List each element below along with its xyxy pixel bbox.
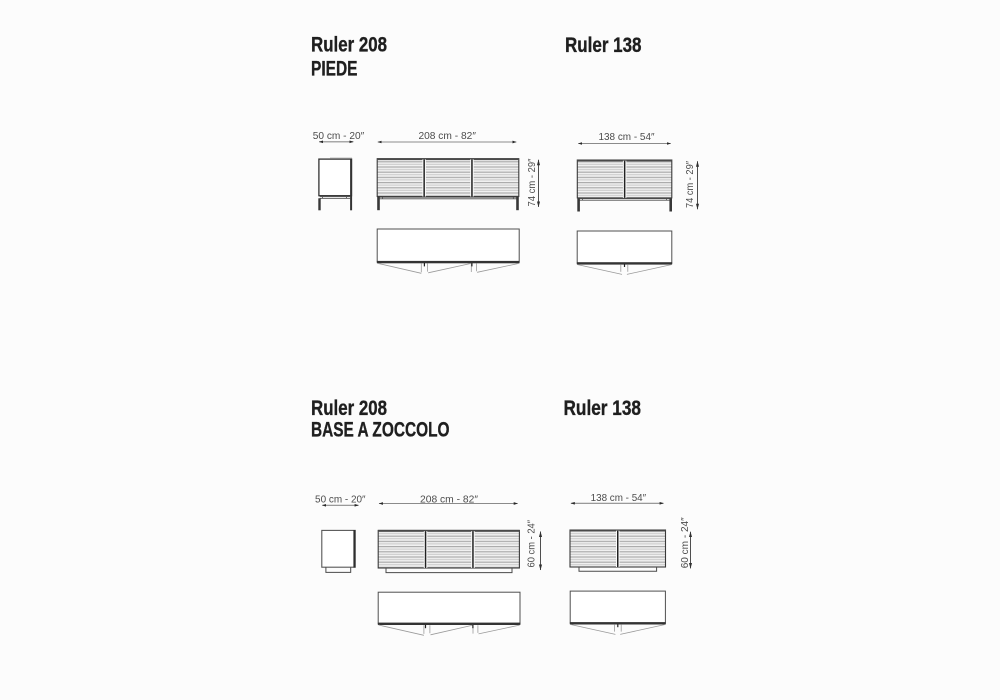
svg-text:PIEDE: PIEDE — [311, 58, 358, 81]
svg-text:50 cm - 20″: 50 cm - 20″ — [313, 130, 365, 142]
svg-text:BASE A ZOCCOLO: BASE A ZOCCOLO — [311, 419, 450, 442]
svg-text:Ruler 208: Ruler 208 — [311, 34, 387, 57]
svg-text:Ruler 138: Ruler 138 — [565, 34, 642, 57]
svg-text:138 cm - 54″: 138 cm - 54″ — [599, 131, 655, 143]
svg-text:60 cm - 24″: 60 cm - 24″ — [526, 520, 538, 568]
svg-text:50 cm - 20″: 50 cm - 20″ — [315, 494, 366, 506]
svg-text:Ruler 208: Ruler 208 — [311, 397, 387, 420]
svg-text:208 cm - 82″: 208 cm - 82″ — [418, 130, 476, 142]
svg-text:74 cm - 29″: 74 cm - 29″ — [526, 158, 538, 206]
svg-text:138 cm - 54″: 138 cm - 54″ — [591, 492, 647, 504]
svg-text:Ruler 138: Ruler 138 — [564, 397, 642, 420]
svg-text:60 cm - 24″: 60 cm - 24″ — [679, 517, 691, 568]
svg-text:74 cm - 29″: 74 cm - 29″ — [684, 161, 696, 208]
